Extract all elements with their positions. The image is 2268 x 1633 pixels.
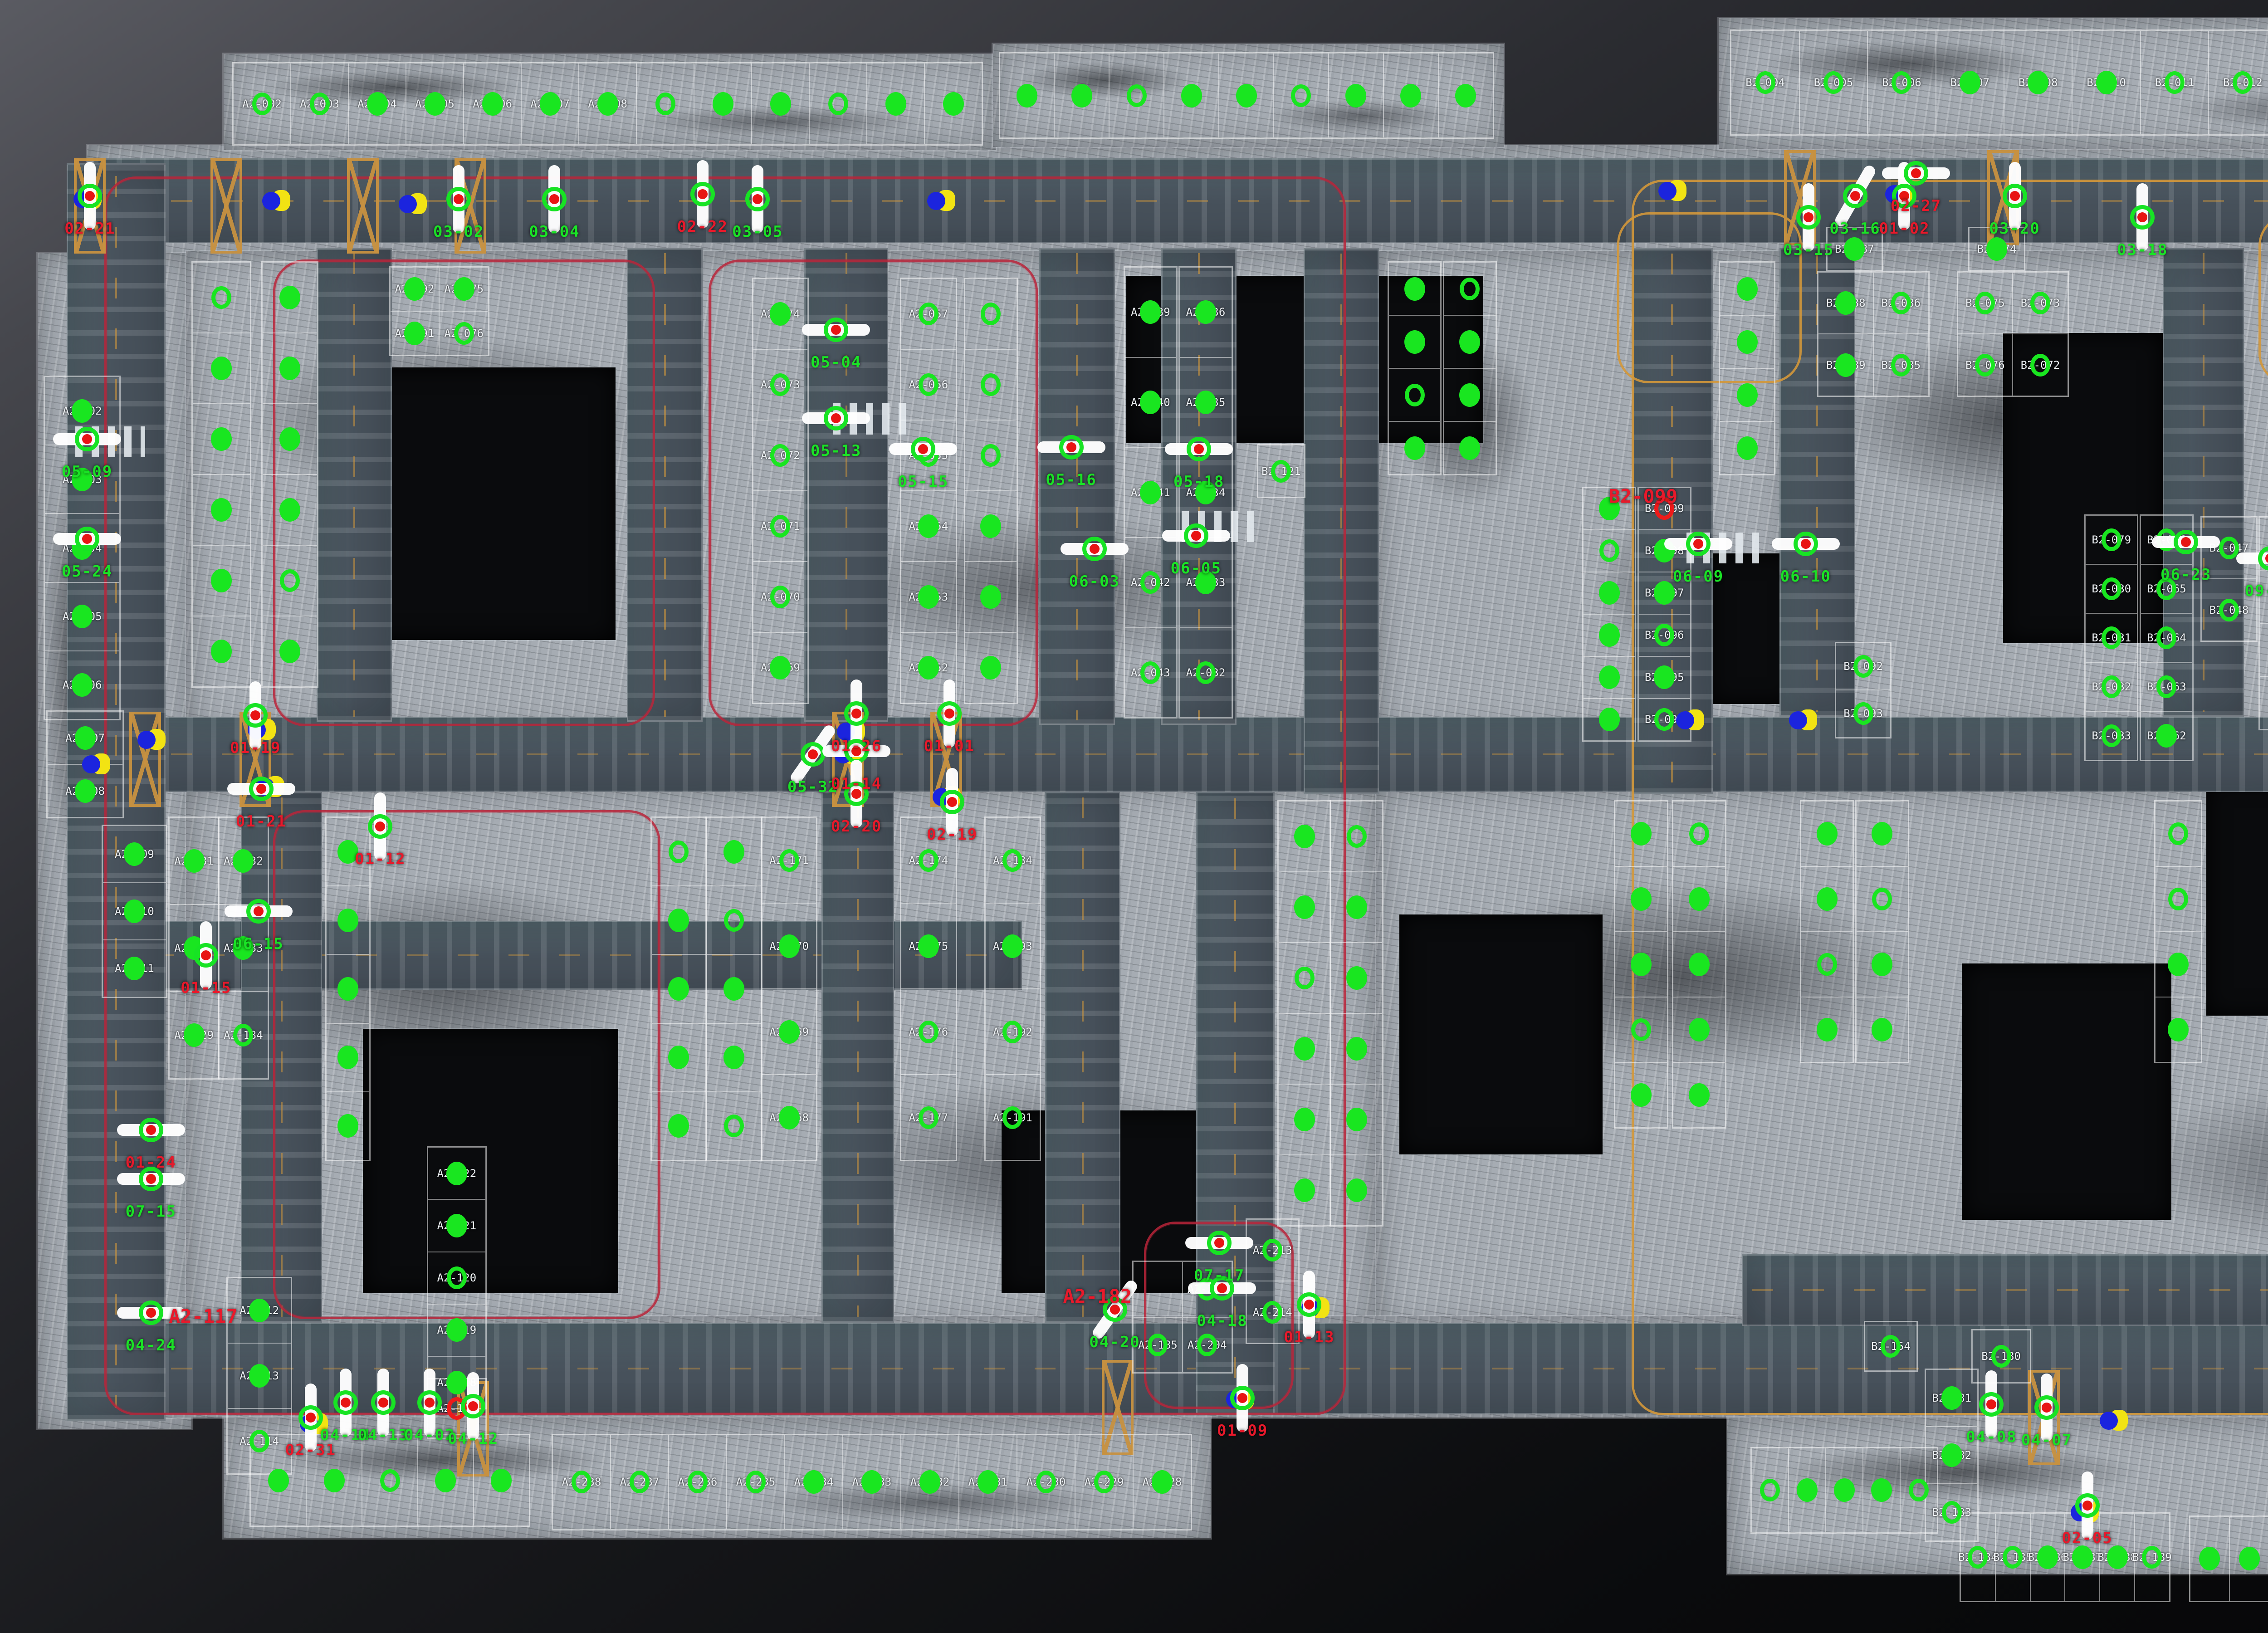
parking-stall: B2-086 [1873,272,1929,334]
stall-sensor[interactable] [1654,581,1675,605]
stall-sensor[interactable] [75,779,96,803]
stall-sensor[interactable] [2003,1546,2023,1569]
stall-sensor[interactable] [72,673,93,697]
camera-center-icon [1066,442,1076,452]
stall-sensor[interactable] [919,1021,938,1043]
stall-sensor[interactable] [1599,708,1620,731]
stall-sensor[interactable] [1968,1546,1988,1569]
stall-sensor[interactable] [919,849,938,872]
stall-sensor[interactable] [1872,888,1892,910]
stall-sensor[interactable] [1345,84,1366,108]
camera-center-icon [947,797,957,807]
stall-sensor[interactable] [2072,1545,2093,1569]
stall-sensor[interactable] [1346,1108,1367,1131]
stall-sensor[interactable] [380,1469,400,1492]
stall-sensor[interactable] [770,373,790,396]
stall-sensor[interactable] [770,302,791,326]
stall-sensor[interactable] [770,586,790,608]
stall-sensor[interactable] [1002,1106,1022,1129]
stall-sensor[interactable] [1197,1334,1217,1356]
stall-sensor[interactable] [233,1024,253,1046]
stall-sensor[interactable] [1941,1443,1962,1467]
stall-sensor[interactable] [279,498,300,522]
stall-sensor[interactable] [1631,1083,1652,1107]
stall-sensor[interactable] [72,399,93,423]
stall-sensor[interactable] [184,1023,205,1047]
stall-sensor[interactable] [746,1471,766,1493]
stall-sensor[interactable] [1294,825,1315,848]
stall-sensor[interactable] [1127,84,1147,107]
parking-stall [326,1092,370,1160]
stall-sensor[interactable] [280,569,300,592]
stall-sensor[interactable] [252,93,272,115]
stall-sensor[interactable] [1346,966,1367,990]
stall-sensor[interactable] [2102,577,2121,600]
stall-sensor[interactable] [713,92,733,116]
stall-sensor[interactable] [803,1470,824,1494]
stall-sensor[interactable] [1002,1021,1022,1043]
stall-sensor[interactable] [1737,436,1758,460]
parking-stall [1388,368,1441,421]
stall-sensor[interactable] [770,92,791,116]
stall-sensor[interactable] [1823,71,1843,94]
stall-sensor[interactable] [980,585,1001,609]
parking-stall: A2-185 [1133,1317,1183,1373]
no-parking-hatch [129,712,161,807]
stall-sensor[interactable] [981,373,1001,396]
stall-sensor[interactable] [1459,330,1480,354]
stall-sensor[interactable] [1975,354,1995,376]
stall-sensor[interactable] [572,1471,591,1493]
parking-stall [1274,53,1329,138]
stall-sensor[interactable] [1036,1471,1056,1493]
stall-sensor[interactable] [918,656,939,680]
stall-sensor[interactable] [2102,626,2121,649]
camera-label: 06-15 [233,935,283,953]
stall-sensor[interactable] [446,1318,467,1342]
stall-sensor[interactable] [1460,278,1480,300]
stall-sensor[interactable] [668,1114,689,1138]
parking-stall: B2-076 [1958,334,2013,396]
parking-stall: B2-072 [2013,334,2068,396]
stall-sensor[interactable] [124,842,145,866]
parking-stall: B2-098 [1638,530,1691,572]
stall-sensor[interactable] [454,322,474,345]
stall-sensor[interactable] [1195,300,1216,324]
stall-sensor[interactable] [779,1020,800,1044]
stall-sensor[interactable] [1909,1479,1929,1501]
stall-sensor[interactable] [1853,655,1873,678]
stall-sensor[interactable] [669,841,689,863]
stall-sensor[interactable] [1689,822,1709,845]
stall-sensor[interactable] [2102,724,2121,747]
stall-sensor[interactable] [1404,436,1425,460]
parking-stall: B2-004 [1731,30,1799,135]
stall-sensor[interactable] [211,640,232,663]
stall-sensor[interactable] [1737,277,1758,301]
stall-sensor[interactable] [1291,84,1311,107]
stall-sensor[interactable] [1853,702,1873,725]
stall-sensor[interactable] [918,585,939,609]
stall-sensor[interactable] [337,909,358,932]
stall-sensor[interactable] [1599,623,1620,647]
stall-sensor[interactable] [72,605,93,628]
stall-sensor[interactable] [1152,1470,1173,1494]
stall-sensor[interactable] [724,1115,744,1137]
stall-sensor[interactable] [2028,71,2048,94]
stall-sensor[interactable] [2142,1546,2162,1569]
stall-bank: A2-109A2-110A2-111 [102,825,167,998]
stall-sensor[interactable] [1002,849,1022,872]
no-parking-hatch [210,158,242,254]
stall-sensor[interactable] [2165,71,2185,94]
stall-sensor[interactable] [1195,391,1216,414]
stall-sensor[interactable] [2102,528,2121,551]
stall-sensor[interactable] [1835,353,1856,377]
stall-sensor[interactable] [1294,1178,1315,1202]
parking-stall [1801,866,1853,932]
stall-sensor[interactable] [2037,1545,2058,1569]
stall-sensor[interactable] [1071,84,1092,108]
stall-sensor[interactable] [268,1469,289,1492]
stall-sensor[interactable] [446,1371,467,1394]
stall-sensor[interactable] [1140,300,1161,324]
stall-sensor[interactable] [1236,84,1257,108]
camera-center-icon [82,534,92,544]
stall-sensor[interactable] [337,1046,358,1069]
stall-sensor[interactable] [337,1114,358,1138]
parking-stall: B2-096 [1638,614,1691,656]
stall-sensor[interactable] [279,640,300,663]
stall-sensor[interactable] [1346,1178,1367,1202]
stall-sensor[interactable] [981,444,1001,467]
stall-sensor[interactable] [2233,71,2253,94]
parking-stall: B2-010 [2072,30,2140,135]
stall-sensor[interactable] [2107,1545,2128,1569]
stall-sensor[interactable] [446,1214,467,1237]
parking-stall: A2-053 [901,562,956,632]
stall-sensor[interactable] [919,1106,938,1129]
parking-stall [262,616,318,687]
stall-sensor[interactable] [1404,277,1425,301]
stall-sensor[interactable] [943,92,964,116]
stall-bank [2154,800,2202,1063]
stall-sensor[interactable] [919,1470,940,1494]
camera-label: 03-18 [2117,241,2168,259]
parking-stall: A2-109 [103,826,166,883]
stall-sensor[interactable] [1294,1037,1315,1061]
stall-sensor[interactable] [2168,888,2188,910]
stall-sensor[interactable] [861,1470,882,1494]
stall-sensor[interactable] [770,656,791,680]
stall-sensor[interactable] [1404,330,1425,354]
stall-sensor[interactable] [1797,1478,1818,1502]
stall-sensor[interactable] [978,1470,998,1494]
stall-sensor[interactable] [279,427,300,451]
stall-sensor[interactable] [540,92,561,116]
stall-sensor[interactable] [1148,1334,1168,1356]
stall-sensor[interactable] [75,726,96,750]
stall-sensor[interactable] [668,1046,689,1069]
camera-label: 05-24 [62,562,112,581]
stall-sensor[interactable] [1459,383,1480,407]
stall-sensor[interactable] [2219,537,2239,559]
stall-sensor[interactable] [404,322,425,345]
stall-sensor[interactable] [1295,967,1315,989]
stall-sensor[interactable] [597,92,618,116]
stall-sensor[interactable] [491,1469,512,1492]
stall-sensor[interactable] [425,92,445,116]
stall-sensor[interactable] [454,277,474,301]
stall-sensor[interactable] [655,93,675,115]
parking-stall: B2-064 [2141,613,2193,662]
parking-stall: A2-007 [521,63,579,145]
stall-sensor[interactable] [1872,1018,1892,1041]
alarm-stall-label: A2-117 [169,1305,238,1327]
parking-stall: B2-093 [1836,690,1891,737]
stall-sensor[interactable] [1737,383,1758,407]
stall-sensor[interactable] [1094,1471,1114,1493]
stall-sensor[interactable] [723,977,744,1001]
stall-sensor[interactable] [211,427,232,451]
parking-stall [1801,997,1853,1062]
stall-sensor[interactable] [211,498,232,522]
camera-center-icon [146,1174,156,1184]
stall-sensor[interactable] [1294,1108,1315,1131]
camera-label: 01-01 [924,737,975,755]
stall-sensor[interactable] [919,373,938,396]
stall-sensor[interactable] [885,92,906,116]
stall-sensor[interactable] [1140,571,1160,594]
stall-sensor[interactable] [828,93,848,115]
stall-sensor[interactable] [1346,1037,1367,1061]
stall-sensor[interactable] [918,514,939,538]
stall-sensor[interactable] [919,303,938,325]
stall-sensor[interactable] [447,1266,467,1289]
stall-sensor[interactable] [1817,953,1837,976]
stall-bank [1750,1447,1938,1534]
stall-sensor[interactable] [2156,724,2177,748]
camera-label: 01-09 [1217,1422,1268,1440]
stall-sensor[interactable] [1654,708,1674,731]
stall-sensor[interactable] [2168,822,2188,845]
stall-bank [1719,261,1776,475]
parking-stall [1673,932,1725,997]
stall-sensor[interactable] [2102,675,2121,698]
stall-sensor[interactable] [1834,1478,1855,1502]
stall-sensor[interactable] [770,444,790,467]
camera-center-icon [468,1401,478,1411]
stall-sensor[interactable] [1975,292,1995,314]
stall-sensor[interactable] [279,286,300,309]
stall-sensor[interactable] [124,957,145,980]
stall-sensor[interactable] [723,1046,744,1069]
stall-sensor[interactable] [1942,1501,1962,1524]
stall-sensor[interactable] [2096,71,2117,94]
stall-sensor[interactable] [1271,460,1291,483]
stall-sensor[interactable] [1294,895,1315,919]
stall-sensor[interactable] [1654,624,1674,646]
stall-sensor[interactable] [1941,1386,1962,1410]
stall-sensor[interactable] [446,1162,467,1185]
stall-sensor[interactable] [1817,1018,1838,1041]
stall-sensor[interactable] [1140,481,1161,504]
stall-sensor[interactable] [1459,436,1480,460]
stall-sensor[interactable] [1196,661,1216,684]
drive-lane [1742,1254,2268,1326]
stall-sensor[interactable] [1262,1239,1282,1261]
stall-sensor[interactable] [2156,675,2176,698]
stall-sensor[interactable] [2219,599,2239,621]
stall-sensor[interactable] [1689,1083,1710,1107]
beacon-blue-icon [82,755,100,773]
camera-center-icon [1911,168,1921,178]
stall-bank: A2-213A2-214 [1246,1218,1300,1345]
stall-sensor[interactable] [1872,953,1892,976]
stall-sensor[interactable] [1844,237,1865,261]
stall-sensor[interactable] [688,1471,708,1493]
stall-sensor[interactable] [249,1364,270,1388]
stall-sensor[interactable] [980,656,1001,680]
stall-sensor[interactable] [482,92,503,116]
stall-sensor[interactable] [1689,953,1710,976]
stall-bank: A2-092A2-075A2-091A2-076 [389,266,490,356]
parking-stall [2229,1516,2268,1601]
stall-sensor[interactable] [1002,934,1023,958]
stall-sensor[interactable] [1140,391,1161,414]
parking-stall: B2-088 [1818,272,1873,334]
stall-sensor[interactable] [2030,292,2050,314]
stall-sensor[interactable] [2030,354,2050,376]
camera-center-icon [2010,191,2020,201]
camera-label: 04-24 [126,1336,176,1354]
stall-sensor[interactable] [1689,887,1710,911]
stall-sensor[interactable] [233,849,254,873]
stall-sensor[interactable] [668,909,689,932]
camera-label: 06-09 [1673,567,1724,586]
parking-stall [474,1435,529,1526]
stall-sensor[interactable] [211,569,232,592]
stall-sensor[interactable] [779,1106,800,1129]
stall-sensor[interactable] [1181,84,1202,108]
stall-sensor[interactable] [249,1299,270,1322]
parking-stall: A2-042 [1124,538,1177,628]
stall-bank [1855,800,1909,1063]
stall-sensor[interactable] [980,514,1001,538]
stall-sensor[interactable] [1960,71,1980,94]
stall-sensor[interactable] [337,977,358,1001]
stall-sensor[interactable] [1737,330,1758,354]
stall-sensor[interactable] [1455,84,1476,108]
stall-sensor[interactable] [1262,1301,1282,1324]
parking-stall [651,886,707,954]
stall-sensor[interactable] [1872,822,1892,846]
stall-sensor[interactable] [1689,1018,1710,1041]
stall-sensor[interactable] [1400,84,1421,108]
parking-stall [965,491,1017,562]
stall-sensor[interactable] [1871,1478,1892,1502]
stall-sensor[interactable] [211,286,231,309]
stall-sensor[interactable] [1760,1479,1780,1501]
stall-sensor[interactable] [1631,1018,1651,1041]
stall-sensor[interactable] [723,840,744,864]
stall-sensor[interactable] [1881,1335,1901,1358]
stall-sensor[interactable] [1405,384,1425,406]
stall-sensor[interactable] [2199,1547,2220,1570]
stall-sensor[interactable] [724,909,744,932]
stall-sensor[interactable] [770,515,790,538]
camera-center-icon [1237,1393,1247,1403]
void-area [363,1029,618,1293]
stall-sensor[interactable] [1631,953,1652,976]
stall-sensor[interactable] [1631,887,1652,911]
stall-sensor[interactable] [367,92,388,116]
stall-sensor[interactable] [2168,953,2189,976]
stall-sensor[interactable] [324,1469,345,1492]
stall-sensor[interactable] [124,900,145,923]
parking-stall: B2-080 [2085,564,2137,613]
stall-sensor[interactable] [1891,292,1911,314]
stall-sensor[interactable] [1599,665,1620,689]
parking-stall [1444,368,1496,421]
stall-sensor[interactable] [1017,84,1037,108]
parking-stall [262,474,318,545]
stall-sensor[interactable] [184,849,205,873]
parking-stall: B2-095 [1638,656,1691,699]
parking-stall [2259,623,2268,676]
parking-stall [924,63,982,145]
stall-sensor[interactable] [1347,825,1367,848]
stall-bank: A2-171A2-170A2-169A2-168 [761,816,818,1161]
stall-sensor[interactable] [1991,1345,2011,1368]
stall-sensor[interactable] [1986,237,2007,261]
stall-sensor[interactable] [249,1430,269,1452]
map-stage[interactable]: A2-002A2-003A2-004A2-005A2-006A2-007A2-0… [0,0,2268,1633]
stall-sensor[interactable] [1817,822,1838,846]
stall-sensor[interactable] [1346,895,1367,919]
void-area [2206,781,2268,1016]
stall-sensor[interactable] [1892,71,1911,94]
stall-sensor[interactable] [211,357,232,380]
stall-sensor[interactable] [1817,887,1838,911]
stall-sensor[interactable] [1631,822,1652,846]
stall-sensor[interactable] [310,93,330,115]
stall-sensor[interactable] [404,277,425,301]
stall-sensor[interactable] [2239,1547,2260,1570]
stall-sensor[interactable] [2168,1018,2189,1041]
stall-sensor[interactable] [1599,539,1619,562]
stall-sensor[interactable] [981,303,1001,325]
stall-bank: B2-180 [1971,1329,2031,1383]
stall-sensor[interactable] [279,357,300,380]
stall-sensor[interactable] [2156,626,2176,649]
stall-sensor[interactable] [918,934,939,958]
stall-sensor[interactable] [1654,665,1675,689]
stall-sensor[interactable] [1835,291,1856,315]
stall-sensor[interactable] [435,1469,456,1492]
stall-sensor[interactable] [779,934,800,958]
stall-sensor[interactable] [1140,661,1160,684]
parking-stall: B2-092 [1836,643,1891,690]
parking-stall: B2-181 [1926,1369,1978,1427]
stall-sensor[interactable] [1891,354,1911,376]
stall-sensor[interactable] [668,977,689,1001]
stall-sensor[interactable] [1755,71,1775,94]
stall-sensor[interactable] [779,849,799,872]
stall-sensor[interactable] [1599,581,1620,605]
parking-stall [192,333,250,404]
stall-sensor[interactable] [630,1471,650,1493]
